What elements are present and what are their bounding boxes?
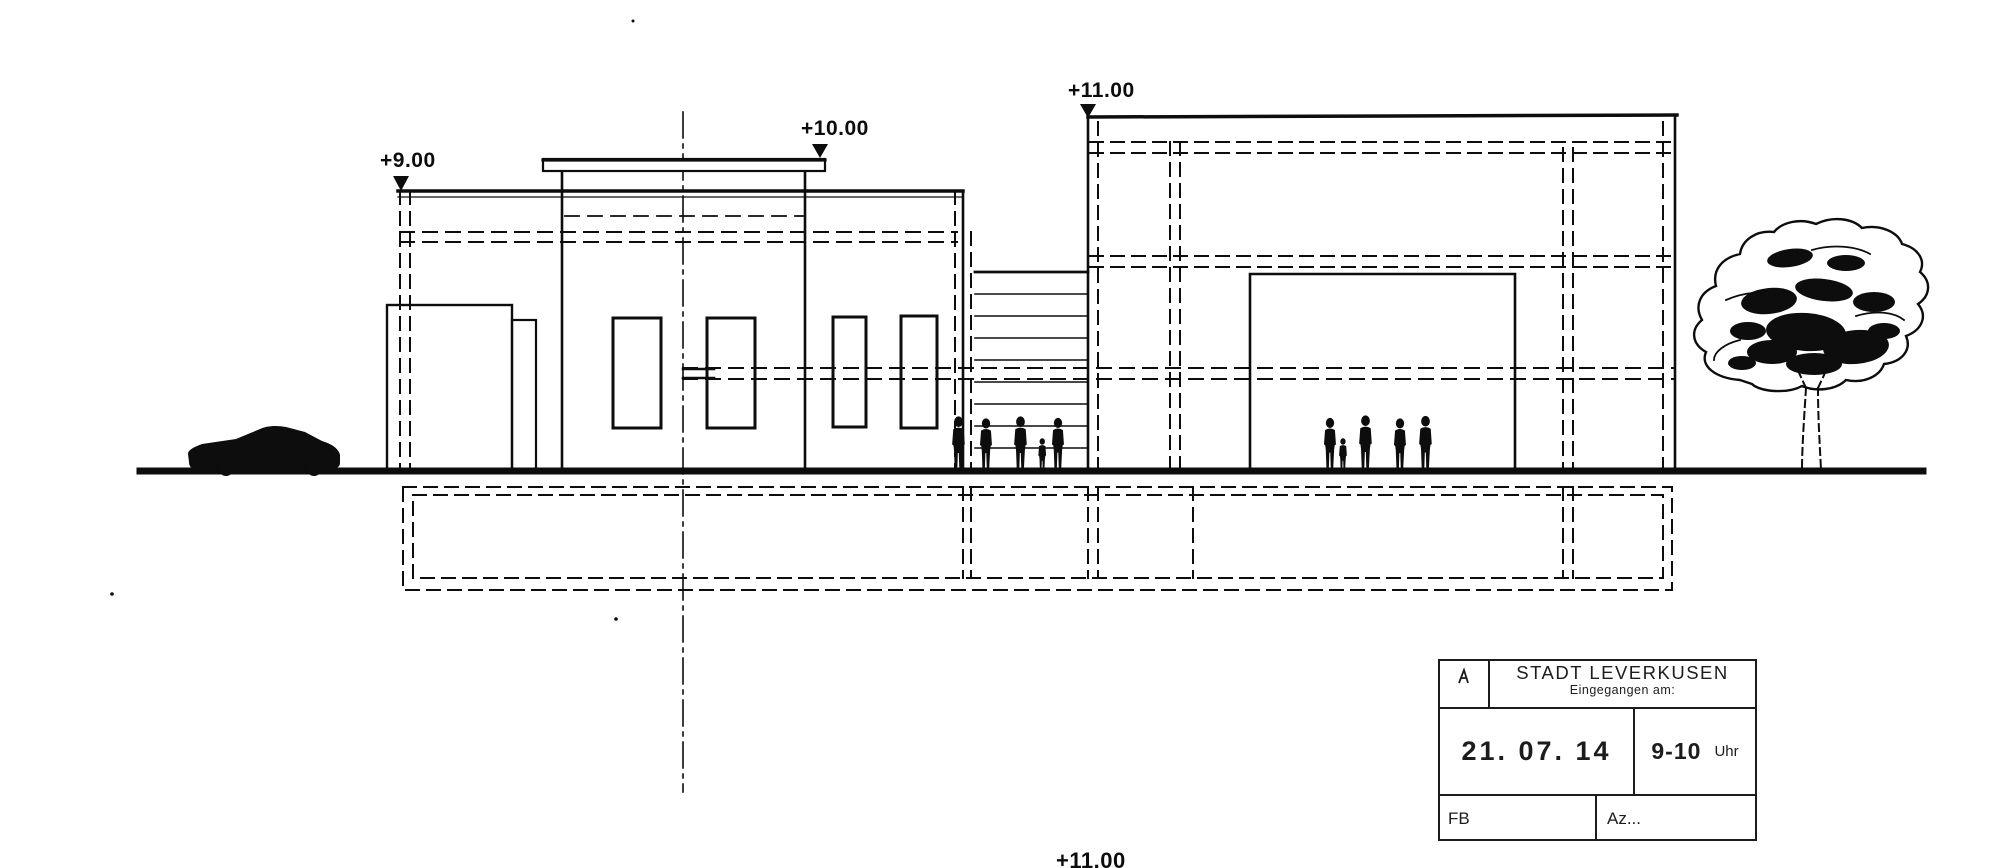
stamp-file-field: Az... xyxy=(1597,796,1755,839)
facade-opening xyxy=(1250,274,1515,471)
right-building xyxy=(1088,115,1677,471)
canopy-slab xyxy=(543,159,825,171)
stamp-emblem-icon xyxy=(1456,667,1472,687)
stamp-header-row: STADT LEVERKUSEN Eingegangen am: xyxy=(1440,661,1755,709)
marker-triangle-10 xyxy=(812,144,828,158)
window-4 xyxy=(901,316,937,428)
ceiling-dashed-band xyxy=(400,232,957,242)
receipt-stamp: STADT LEVERKUSEN Eingegangen am: 21. 07.… xyxy=(1438,659,1757,841)
child-figure xyxy=(1038,438,1046,471)
person-figure xyxy=(1419,416,1432,470)
left-building xyxy=(387,159,963,471)
scan-speck xyxy=(110,20,634,621)
people-group-right xyxy=(1324,415,1432,471)
tree xyxy=(1694,219,1928,470)
elevation-label-11-bottom-cut: +11.00 xyxy=(1056,848,1126,868)
stamp-emblem-cell xyxy=(1440,661,1490,707)
person-figure xyxy=(1014,416,1027,470)
stamp-subtitle: Eingegangen am: xyxy=(1490,683,1755,697)
stamp-time-unit: Uhr xyxy=(1714,743,1738,760)
annex-left xyxy=(387,305,512,471)
annex-narrow xyxy=(512,320,536,471)
stamp-title: STADT LEVERKUSEN xyxy=(1490,662,1755,684)
person-figure xyxy=(1394,418,1406,469)
stamp-date-row: 21. 07. 14 9-10 Uhr xyxy=(1440,709,1755,796)
elevation-label-10: +10.00 xyxy=(801,117,869,141)
people-group-left xyxy=(952,416,1064,471)
stamp-dept-field: FB xyxy=(1440,796,1597,839)
scanned-drawing-page: +9.00 +10.00 +11.00 +11.00 STADT LEVERKU… xyxy=(0,0,2000,868)
marker-triangle-9 xyxy=(393,176,409,191)
car-silhouette xyxy=(188,426,340,476)
stamp-time-cell: 9-10 Uhr xyxy=(1635,709,1755,794)
basement-outline xyxy=(403,487,1672,590)
stamp-header: STADT LEVERKUSEN Eingegangen am: xyxy=(1490,661,1755,707)
window-2 xyxy=(707,318,755,428)
elevation-label-11: +11.00 xyxy=(1068,79,1135,103)
person-figure xyxy=(1359,415,1372,469)
person-figure xyxy=(1324,418,1336,469)
stamp-footer-row: FB Az... xyxy=(1440,796,1755,839)
elevation-label-9: +9.00 xyxy=(380,149,436,173)
window-3 xyxy=(833,317,866,427)
child-figure xyxy=(1339,438,1347,471)
stamp-time: 9-10 xyxy=(1651,738,1701,765)
stamp-date: 21. 07. 14 xyxy=(1440,709,1635,794)
window-1 xyxy=(613,318,661,428)
